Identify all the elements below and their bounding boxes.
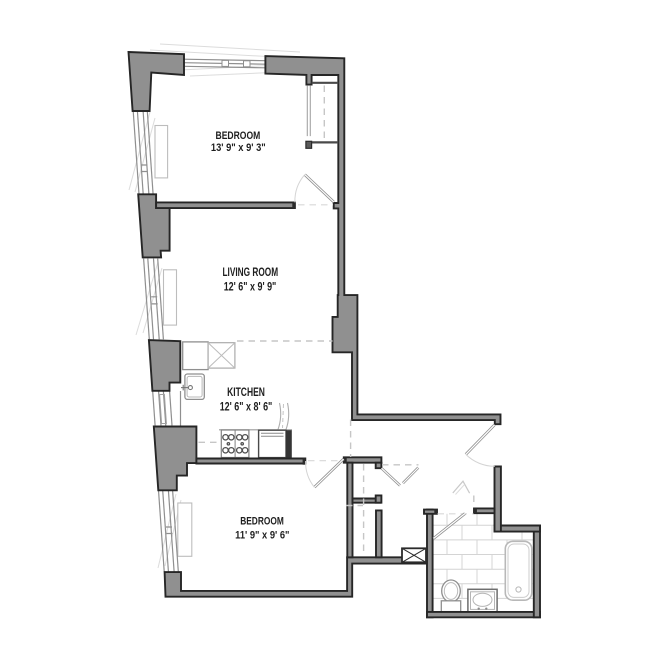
svg-text:13' 9" x 9' 3": 13' 9" x 9' 3" xyxy=(211,142,266,154)
svg-text:12' 6" x 8' 6": 12' 6" x 8' 6" xyxy=(220,401,273,413)
svg-text:12' 6" x 9' 9": 12' 6" x 9' 9" xyxy=(224,281,277,293)
svg-text:BEDROOM: BEDROOM xyxy=(216,130,261,142)
svg-text:LIVING ROOM: LIVING ROOM xyxy=(222,267,278,280)
svg-text:BEDROOM: BEDROOM xyxy=(240,515,284,527)
svg-text:KITCHEN: KITCHEN xyxy=(227,387,265,400)
svg-text:11' 9" x 9' 6": 11' 9" x 9' 6" xyxy=(235,530,289,542)
